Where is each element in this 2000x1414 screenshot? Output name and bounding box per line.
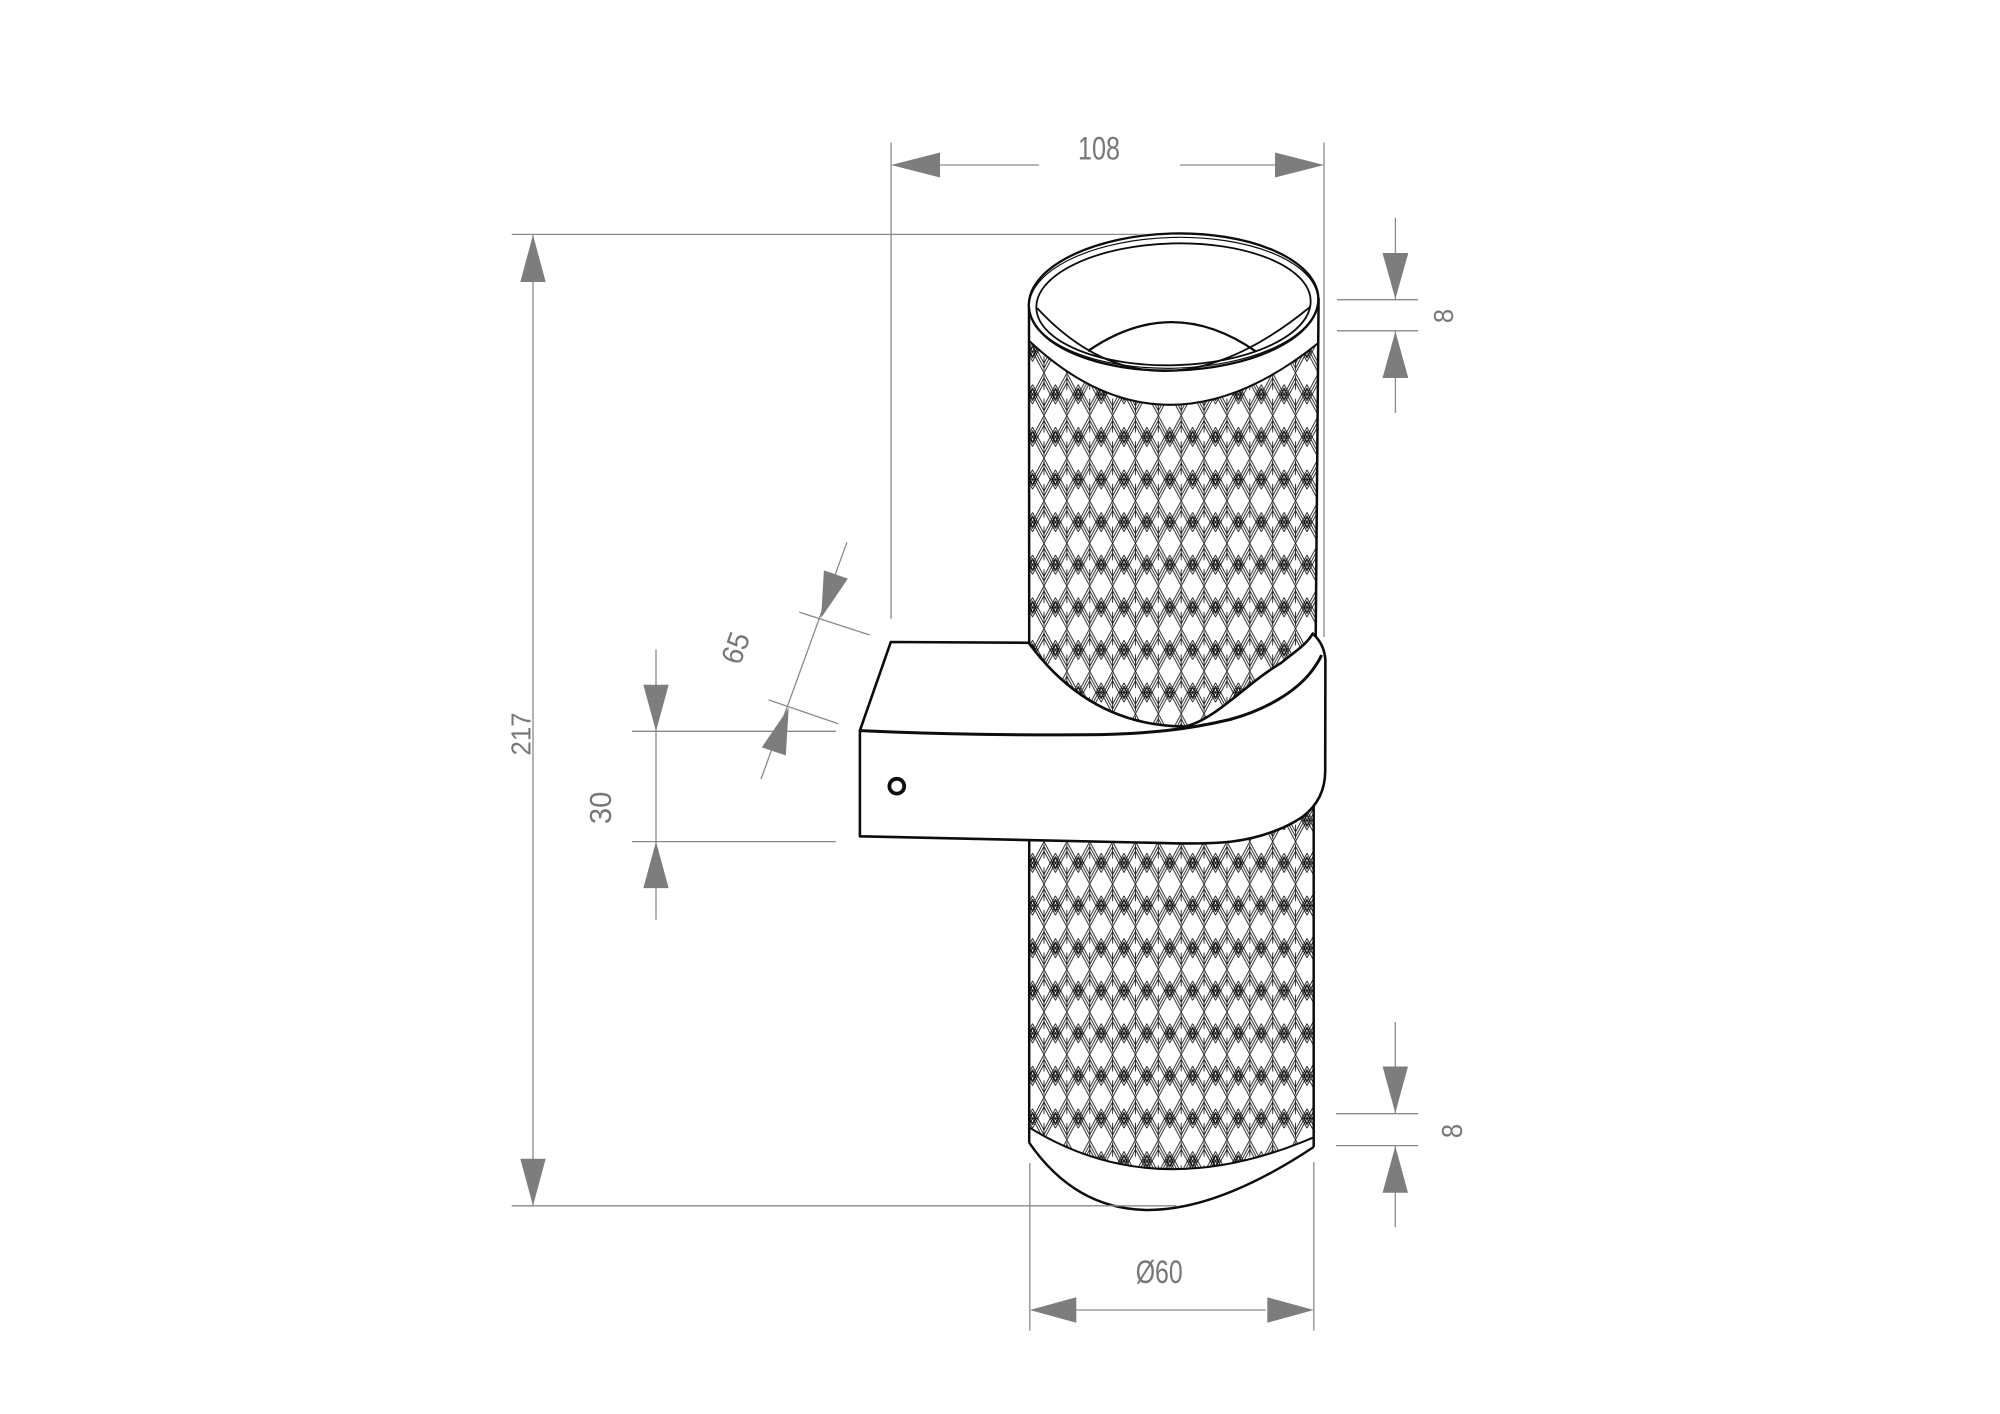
svg-text:30: 30 <box>584 792 618 825</box>
svg-text:Ø60: Ø60 <box>1136 1254 1183 1290</box>
svg-text:8: 8 <box>1437 1124 1469 1138</box>
svg-text:8: 8 <box>1428 309 1459 323</box>
svg-text:217: 217 <box>505 713 536 756</box>
svg-text:65: 65 <box>715 628 757 668</box>
svg-text:108: 108 <box>1078 131 1120 167</box>
